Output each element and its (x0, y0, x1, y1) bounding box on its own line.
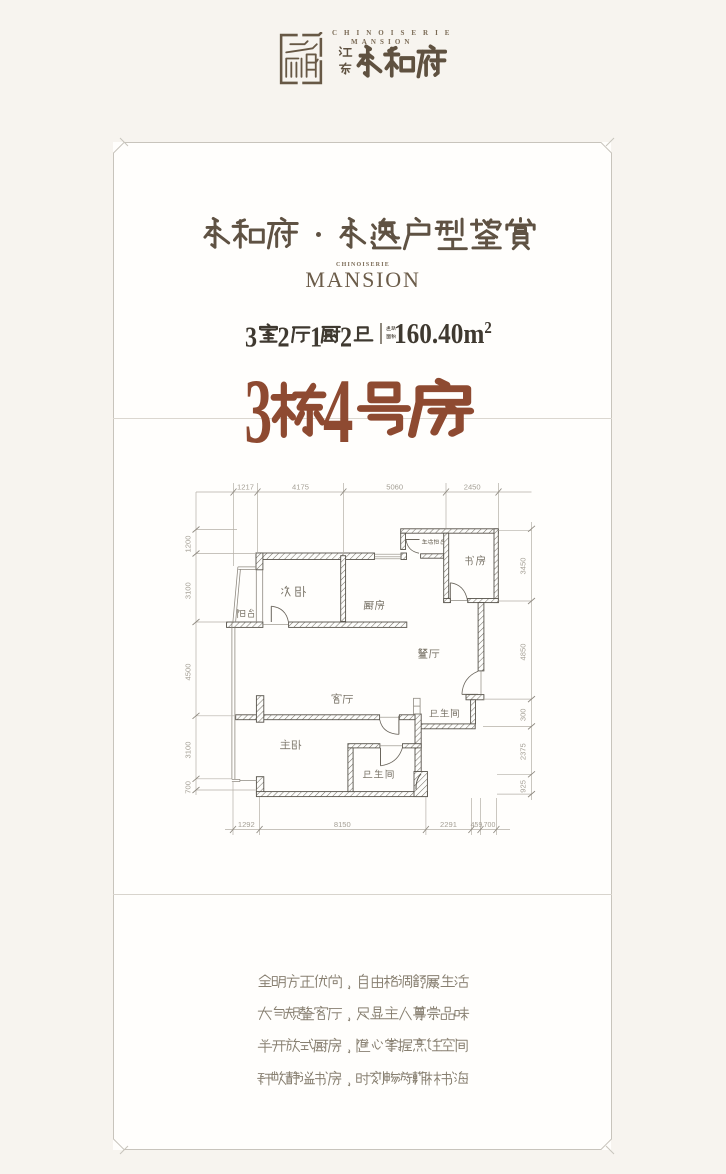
svg-text:2450: 2450 (464, 483, 481, 492)
svg-text:459: 459 (471, 822, 483, 829)
svg-text:925: 925 (519, 780, 528, 793)
svg-text:2375: 2375 (519, 743, 528, 760)
svg-text:3100: 3100 (184, 582, 193, 599)
svg-text:2: 2 (278, 322, 290, 353)
svg-text:4500: 4500 (184, 664, 193, 681)
svg-text:3450: 3450 (519, 558, 528, 575)
svg-text:2291: 2291 (440, 820, 457, 829)
svg-text:4850: 4850 (519, 644, 528, 661)
svg-text:3100: 3100 (184, 742, 193, 759)
svg-text:5060: 5060 (386, 483, 403, 492)
svg-text:3: 3 (245, 361, 273, 463)
svg-text:1292: 1292 (238, 820, 255, 829)
svg-text:2: 2 (340, 322, 352, 353)
svg-text:1: 1 (310, 322, 322, 353)
svg-text:700: 700 (184, 781, 193, 794)
svg-text:700: 700 (484, 822, 496, 829)
svg-text:300: 300 (519, 708, 528, 721)
svg-text:1217: 1217 (237, 483, 254, 492)
svg-text:1200: 1200 (184, 536, 193, 553)
svg-text:8150: 8150 (334, 820, 351, 829)
svg-text:4: 4 (323, 361, 353, 463)
svg-text:3: 3 (245, 322, 257, 353)
svg-text:4175: 4175 (292, 483, 309, 492)
